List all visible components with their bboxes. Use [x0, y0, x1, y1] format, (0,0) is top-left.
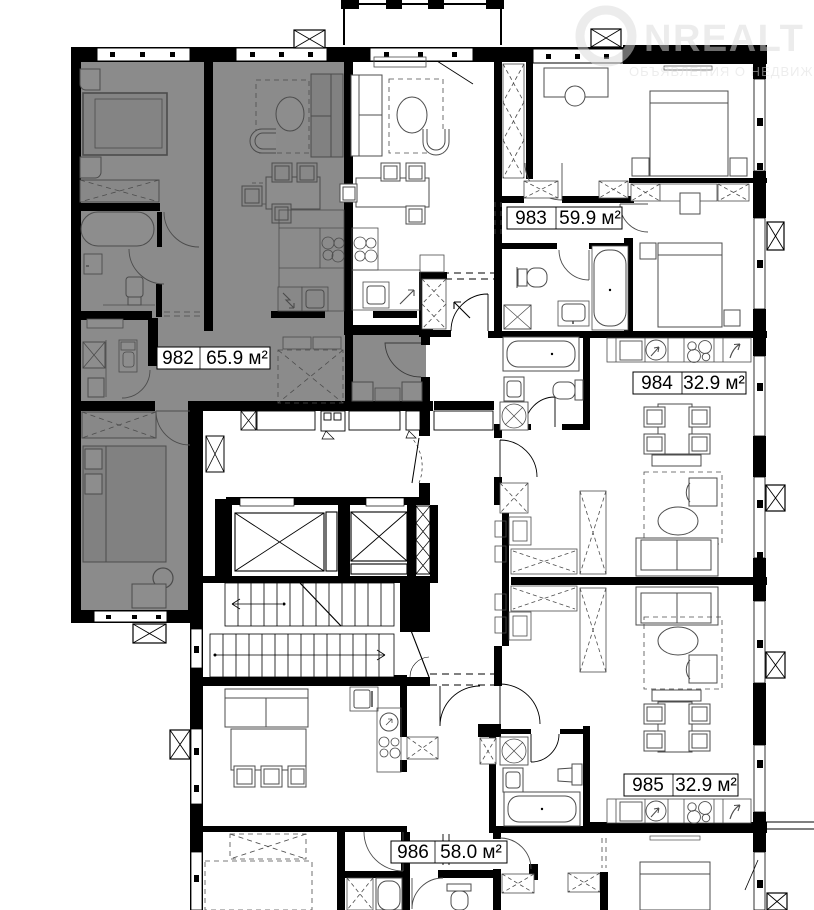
svg-text:32.9 м²: 32.9 м² — [683, 373, 745, 394]
svg-text:58.0 м²: 58.0 м² — [440, 842, 502, 863]
svg-text:985: 985 — [632, 775, 664, 796]
svg-text:983: 983 — [515, 208, 547, 229]
svg-text:59.9 м²: 59.9 м² — [559, 208, 621, 229]
svg-text:32.9 м²: 32.9 м² — [675, 775, 737, 796]
svg-text:986: 986 — [397, 842, 429, 863]
svg-text:982: 982 — [162, 348, 194, 369]
svg-text:984: 984 — [641, 373, 673, 394]
svg-text:NREALT: NREALT — [644, 18, 804, 60]
svg-text:65.9 м²: 65.9 м² — [206, 348, 268, 369]
svg-text:ОБЪЯВЛЕНИЯ О НЕДВИЖИМОСТИ: ОБЪЯВЛЕНИЯ О НЕДВИЖИМОСТИ — [629, 64, 814, 79]
